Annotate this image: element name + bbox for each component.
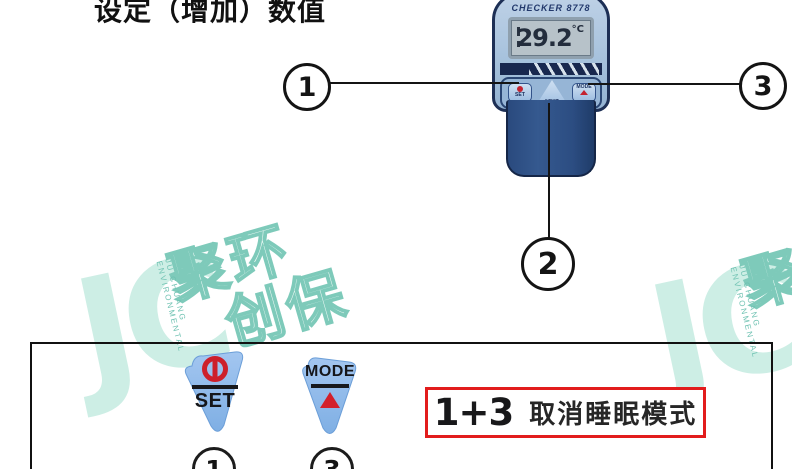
device-set-button-label: SET [511,92,530,97]
lcd-unit: °C [572,24,584,35]
set-key-content: SET [182,356,248,413]
callout-circle-3: 3 [739,62,787,110]
callout-line-1 [329,82,519,84]
legend-set-key: SET [182,349,248,441]
device-model-label: CHECKER 8778 [495,3,607,13]
device-mode-button-label: MODE [575,84,594,89]
mode-key-content: MODE [300,363,360,408]
device-thermometer-head: CHECKER 8778 29.2°C SET NEXT MODE [492,0,610,112]
diagonal-stripes-icon [529,63,599,75]
power-dot-icon [517,86,523,92]
triangle-up-icon [580,90,588,95]
note-key-combo: 1+3 [434,391,514,434]
device-stripe-decoration [500,63,602,75]
device-lcd-bezel: 29.2°C [508,17,594,59]
device-lcd-screen: 29.2°C [511,20,591,56]
triangle-up-icon [320,392,340,408]
callout-number: 2 [538,247,559,282]
divider-line [311,384,349,388]
callout-line-2 [548,103,550,239]
power-symbol-icon [202,356,228,382]
divider-line [192,385,238,389]
page-title: 设定（增加）数值 [94,0,326,29]
mode-key-label: MODE [300,363,360,381]
watermark-cn-line1: 聚环 [736,222,792,319]
note-box: 1+3 取消睡眠模式 [425,387,706,438]
badge-number: 1 [205,455,222,469]
legend-mode-key: MODE [300,353,360,441]
callout-circle-1: 1 [283,63,331,111]
callout-line-3 [588,83,740,85]
note-description: 取消睡眠模式 [529,394,697,431]
callout-circle-2: 2 [521,237,575,291]
lcd-temperature-reading: 29.2°C [516,24,584,52]
lcd-value: 29.2 [516,24,571,52]
device-thermometer-handle [506,100,596,177]
badge-number: 3 [323,455,340,469]
callout-number: 3 [754,71,773,102]
callout-number: 1 [298,72,317,103]
instruction-diagram: 设定（增加）数值 JC 聚环 创保 JU CHUANG ENVIRONMENTA… [0,0,792,469]
watermark-cn-line1: 聚环 [162,216,299,313]
set-key-label: SET [182,390,248,413]
